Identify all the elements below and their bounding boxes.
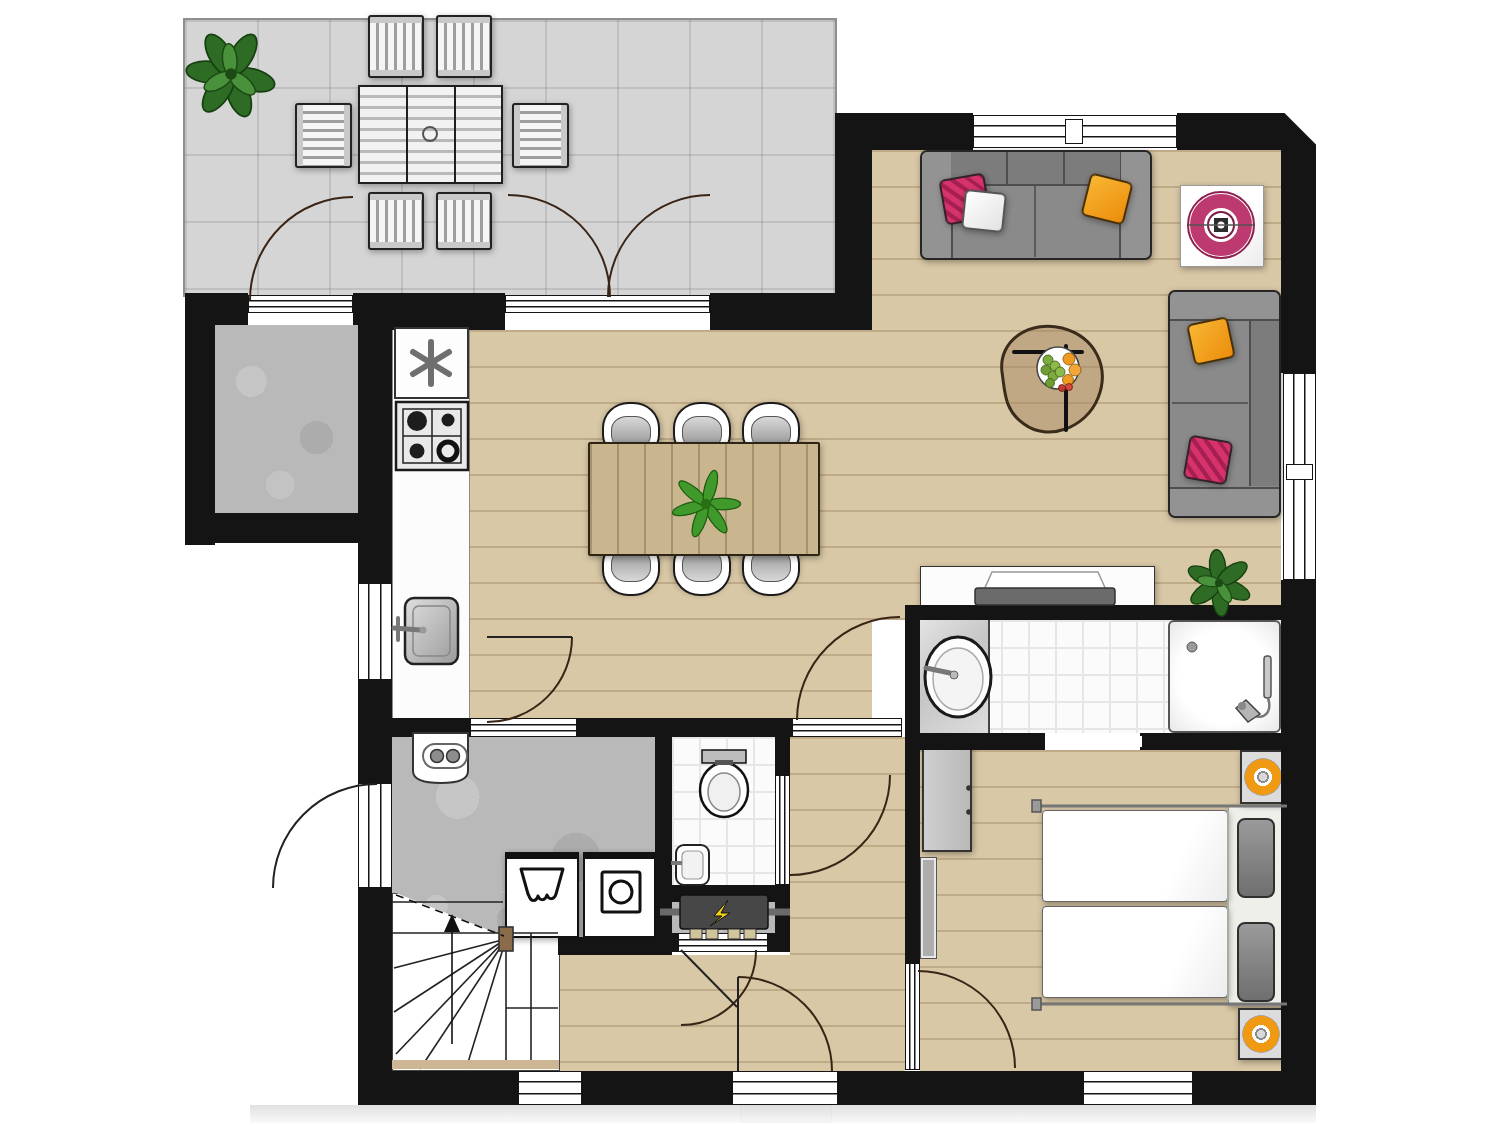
wall-segment <box>768 933 790 952</box>
window-mullion <box>1286 464 1313 480</box>
wall-segment <box>582 1071 732 1105</box>
wall-segment <box>577 718 792 737</box>
window-mullion <box>1065 119 1083 144</box>
stair-window <box>518 1071 582 1105</box>
outdoor-chair <box>368 192 424 250</box>
outdoor-chair <box>436 15 492 78</box>
sofa-armrest <box>1170 487 1279 516</box>
wall-segment <box>1193 1071 1316 1105</box>
wall-segment <box>1281 113 1316 373</box>
sliding-door-dash <box>1048 736 1074 747</box>
terrace-floor <box>185 20 835 295</box>
outdoor-table <box>358 85 503 184</box>
wall-segment <box>655 737 672 955</box>
lamp <box>1244 758 1282 796</box>
storage-floor <box>215 325 360 513</box>
outdoor-chair <box>368 15 424 78</box>
wall-segment <box>392 718 470 737</box>
hall-door-opening <box>792 718 902 737</box>
sofa-backrest <box>1249 321 1279 486</box>
dryer <box>583 852 656 938</box>
tv-lowboard <box>920 566 1155 608</box>
wall-segment <box>358 680 392 783</box>
wall-segment <box>838 1071 1083 1105</box>
sofa-seat-split <box>1172 402 1248 404</box>
wardrobe <box>922 742 972 852</box>
bathroom-vanity-counter <box>920 620 990 733</box>
washing-machine <box>505 852 579 938</box>
pink-pillow <box>1183 435 1234 486</box>
side-exterior-door <box>358 783 392 888</box>
terrace-double-door-sill <box>505 295 710 313</box>
orange-pillow <box>1186 316 1236 366</box>
wall-segment <box>655 885 790 902</box>
mattress <box>1042 906 1228 998</box>
wall-segment <box>392 293 505 330</box>
wall-segment <box>1281 580 1316 1105</box>
kitchen-counter <box>392 320 470 722</box>
wall-segment <box>185 293 215 545</box>
wall-segment <box>905 605 920 963</box>
mattress <box>1042 810 1228 902</box>
bed-pillow <box>1237 818 1275 898</box>
front-door-sill <box>732 1071 838 1105</box>
kitchen-window <box>358 583 392 680</box>
bedroom-door-leaf <box>905 963 920 1070</box>
page-bottom-shadow <box>250 1105 1316 1123</box>
sliding-door-dash <box>1082 736 1108 747</box>
electrical-alcove-floor <box>672 902 775 933</box>
tall-mirror <box>921 858 936 958</box>
kitchen-door-opening <box>470 718 577 737</box>
wc-door-leaf <box>775 775 790 885</box>
lamp <box>1242 1015 1280 1053</box>
wall-segment <box>775 737 790 775</box>
wall-segment <box>905 733 1045 750</box>
wall-segment <box>905 605 1281 620</box>
wall-segment <box>358 1071 518 1105</box>
sliding-door-dash <box>1116 736 1142 747</box>
wall-segment <box>558 937 672 955</box>
wall-segment <box>835 113 872 330</box>
sofa-seat-split <box>1034 186 1036 257</box>
wc-floor <box>672 737 775 888</box>
white-pillow <box>961 189 1007 233</box>
understairs-glass-door <box>678 933 768 952</box>
terrace-storage-door-sill <box>248 295 353 313</box>
dining-table <box>588 442 820 556</box>
outdoor-chair <box>512 103 569 168</box>
outdoor-chair <box>436 192 492 250</box>
bedroom-window <box>1083 1071 1193 1105</box>
wall-segment <box>1140 733 1281 750</box>
outdoor-chair <box>295 103 352 168</box>
wall-art-panel <box>1180 185 1264 267</box>
wall-segment <box>872 113 973 150</box>
wall-segment <box>358 293 392 583</box>
shower-tray <box>1168 620 1281 733</box>
wall-segment <box>185 513 365 543</box>
floor-plan-canvas <box>0 0 1500 1125</box>
bed-pillow <box>1237 922 1275 1002</box>
